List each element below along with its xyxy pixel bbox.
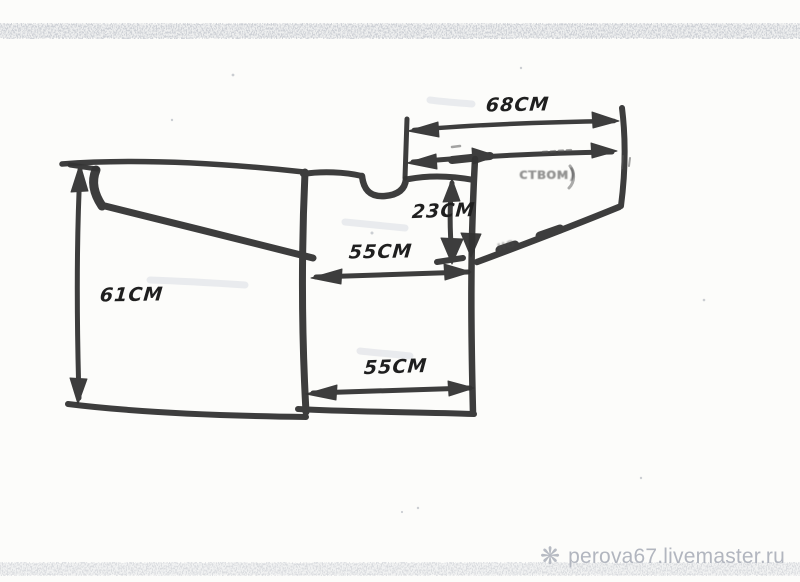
sleeve-top-dim-line <box>413 152 612 162</box>
body-length-label: 61см <box>99 283 164 306</box>
scan-noise-band-top <box>0 23 800 39</box>
body-top-left-line <box>303 172 362 176</box>
watermark: ❋ perova67.livemaster.ru <box>540 545 785 569</box>
body-top-right-line <box>409 176 474 180</box>
sleeve-top-arrowhead-left <box>407 154 437 169</box>
sleeve-top-arrowhead-right <box>591 143 617 158</box>
sleeve-top-mid-arrowhead <box>472 148 497 164</box>
sleeve-dim-arrowhead-right <box>592 112 619 128</box>
length-dim-arrowhead-down <box>70 378 87 404</box>
sleeve-dim-left-tick <box>405 119 407 178</box>
body-left-line <box>302 172 306 412</box>
scanned-pattern-sketch: 68см 23см 55см 55см 61см ством) но ❋ per… <box>0 0 800 582</box>
length-dim-top-tick <box>70 165 97 169</box>
chest-dim-arrowhead-left <box>311 269 342 284</box>
sleeve-dim-arrowhead-left <box>408 122 439 137</box>
bottom-extent-line <box>68 404 306 417</box>
hem-line <box>298 409 474 414</box>
sleeve-span-label: 68см <box>485 93 550 116</box>
hem-dim-arrowhead-left <box>306 385 337 400</box>
junction-dash <box>437 258 463 262</box>
neckline-curve <box>362 176 406 196</box>
watermark-text: perova67.livemaster.ru <box>568 545 785 569</box>
erased-note-top: ством) <box>519 165 576 183</box>
body-right-line <box>471 159 475 413</box>
hem-width-label: 55см <box>363 355 428 379</box>
armhole-depth-label: 23см <box>411 199 476 223</box>
length-dim-line <box>77 170 80 398</box>
sleeve-dim-line <box>414 121 614 130</box>
chest-width-label: 55см <box>348 240 413 263</box>
livemaster-flower-icon: ❋ <box>540 545 560 569</box>
left-underarm-line <box>101 205 313 258</box>
chest-dim-arrowhead-right <box>444 264 471 280</box>
left-cuff-line <box>94 170 102 206</box>
body-edge-extra-arrowhead <box>461 233 481 257</box>
